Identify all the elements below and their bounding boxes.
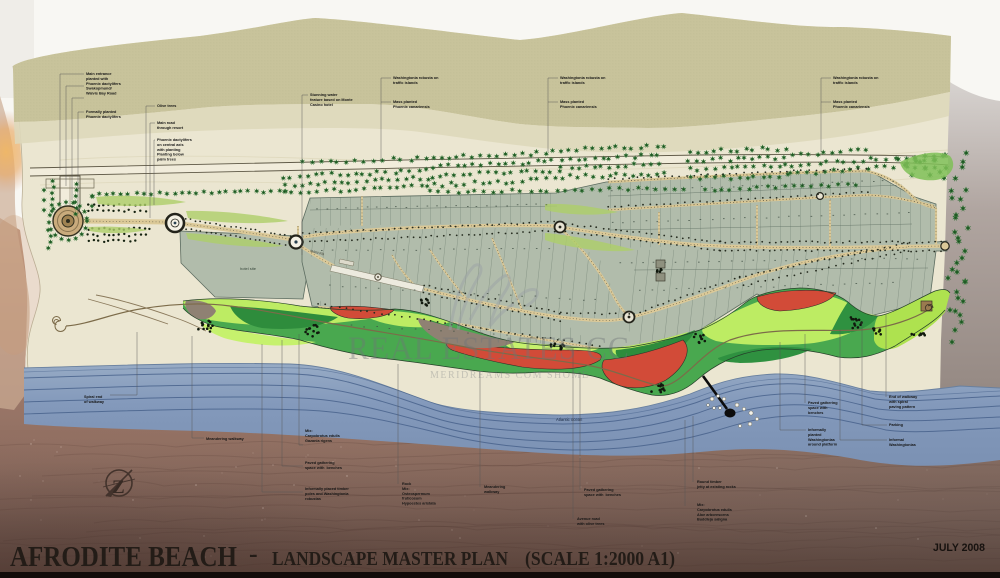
svg-text:-: - (249, 539, 258, 568)
svg-text:Atlantic ocean: Atlantic ocean (556, 417, 583, 422)
svg-text:Formally plantedPhoenix dactyl: Formally plantedPhoenix dactylifers (86, 110, 121, 119)
svg-text:AFRODITE BEACH: AFRODITE BEACH (10, 542, 237, 573)
svg-text:(SCALE 1:2000 A1): (SCALE 1:2000 A1) (525, 549, 675, 570)
svg-text:Meandering walkway: Meandering walkway (206, 437, 245, 441)
svg-text:LANDSCAPE MASTER PLAN: LANDSCAPE MASTER PLAN (272, 549, 508, 570)
svg-text:hotel site: hotel site (240, 266, 257, 271)
svg-text:MERIDREAMS COM SHOME: MERIDREAMS COM SHOME (430, 370, 589, 381)
svg-text:REAL ESTATES CC: REAL ESTATES CC (348, 331, 630, 367)
svg-text:Spiral endof walkway: Spiral endof walkway (84, 395, 105, 404)
svg-text:JULY 2008: JULY 2008 (933, 542, 985, 554)
svg-text:Z: Z (112, 477, 125, 498)
svg-text:Olive trees: Olive trees (157, 104, 176, 108)
svg-text:Parking: Parking (889, 423, 904, 427)
